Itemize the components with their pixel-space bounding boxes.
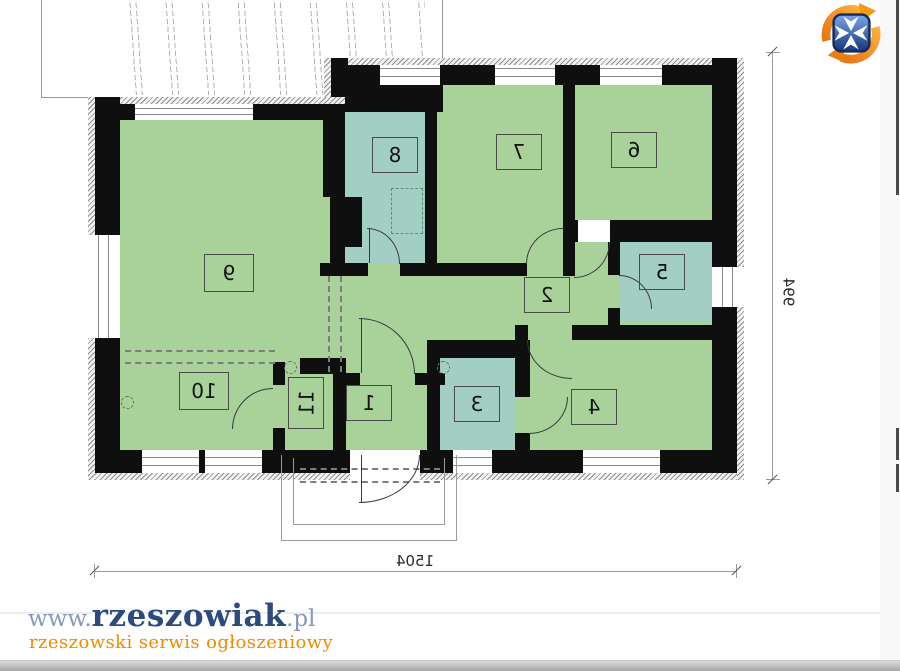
wall-hatch (420, 473, 737, 480)
room-label-6: 6 (611, 132, 657, 168)
wall (273, 428, 285, 450)
room-number: 11 (294, 390, 318, 415)
room-label-2: 2 (524, 277, 570, 313)
rzeszowiak-logo (820, 2, 882, 64)
wall (345, 65, 380, 85)
adjacent-content-edge (896, 464, 899, 492)
window (453, 450, 492, 473)
room-number: 5 (656, 260, 669, 284)
dimension-value: 1504 (396, 552, 434, 570)
dimension-line-horizontal (95, 571, 737, 572)
window (135, 103, 253, 120)
wall (95, 450, 142, 473)
room-number: 10 (191, 379, 216, 403)
door-opening (578, 220, 610, 242)
room-number: 3 (471, 392, 484, 416)
room-number: 8 (389, 143, 402, 167)
wall-hatch (324, 58, 331, 97)
shower-outline (391, 188, 423, 234)
door-leaf (369, 228, 370, 263)
dashed-boundary (125, 350, 275, 352)
wall (253, 104, 345, 120)
room-label-4: 4 (571, 389, 617, 425)
door-leaf (361, 455, 362, 502)
window (88, 235, 120, 338)
wall (400, 263, 427, 276)
dimension-value: 994 (780, 278, 798, 307)
wordmark-name: rzeszowiak (92, 598, 286, 634)
site-tagline: rzeszowski serwis ogłoszeniowy (29, 632, 333, 653)
dimension-tick (766, 52, 780, 53)
room-number: 4 (588, 395, 601, 419)
room-label-8: 8 (372, 137, 418, 173)
wall (425, 85, 437, 276)
wall (660, 450, 737, 473)
chimney (330, 197, 362, 247)
symbol-spiral (284, 361, 297, 374)
site-wordmark: www.rzeszowiak.pl (28, 598, 315, 634)
wall (415, 373, 445, 385)
wall (608, 242, 620, 275)
wall (572, 325, 712, 340)
logo-icon (820, 2, 882, 64)
wall (437, 263, 527, 276)
wall (555, 65, 600, 85)
room-number: 2 (541, 283, 554, 307)
dimension-line-vertical (772, 52, 773, 480)
adjacent-content-edge (896, 0, 899, 195)
room-label-1: 1 (346, 385, 392, 421)
room-number: 9 (223, 261, 236, 285)
bottom-bar (0, 660, 900, 671)
wall (330, 247, 345, 263)
wall-hatch (88, 97, 345, 104)
window-mullion (199, 450, 205, 473)
symbol-spiral (437, 361, 450, 374)
room-label-5: 5 (639, 254, 685, 290)
adjacent-content-edge (896, 428, 899, 460)
dimension-height: 994 (778, 262, 800, 322)
wall (515, 325, 528, 340)
dashed-boundary (340, 276, 342, 372)
wall (345, 373, 360, 385)
symbol-spiral (121, 396, 134, 409)
door-leaf (361, 318, 362, 373)
wall (95, 97, 120, 235)
wall (515, 433, 530, 450)
room-number: 1 (363, 391, 376, 415)
wall (300, 358, 345, 374)
dashed-boundary (328, 276, 330, 372)
listing-image: 9 10 11 1 3 4 2 5 6 7 8 994 1504 (0, 0, 900, 671)
floor-plan: 9 10 11 1 3 4 2 5 6 7 8 994 1504 (0, 0, 800, 600)
window (712, 267, 744, 307)
dimension-width: 1504 (370, 552, 460, 569)
wall-hatch (338, 58, 744, 65)
wall (440, 65, 495, 85)
wall (492, 450, 583, 473)
wordmark-prefix: www. (28, 606, 92, 632)
wall (712, 58, 737, 267)
window (583, 450, 660, 473)
room-number: 7 (513, 140, 526, 164)
room-label-3: 3 (454, 386, 500, 422)
room-label-11: 11 (288, 377, 324, 429)
room-label-9: 9 (204, 254, 254, 292)
wall (320, 263, 368, 276)
wall (323, 120, 345, 197)
room-label-10: 10 (179, 372, 229, 410)
room-label-7: 7 (496, 134, 542, 170)
room-number: 6 (628, 138, 641, 162)
wordmark-suffix: .pl (286, 606, 315, 632)
dashed-boundary (125, 362, 275, 364)
